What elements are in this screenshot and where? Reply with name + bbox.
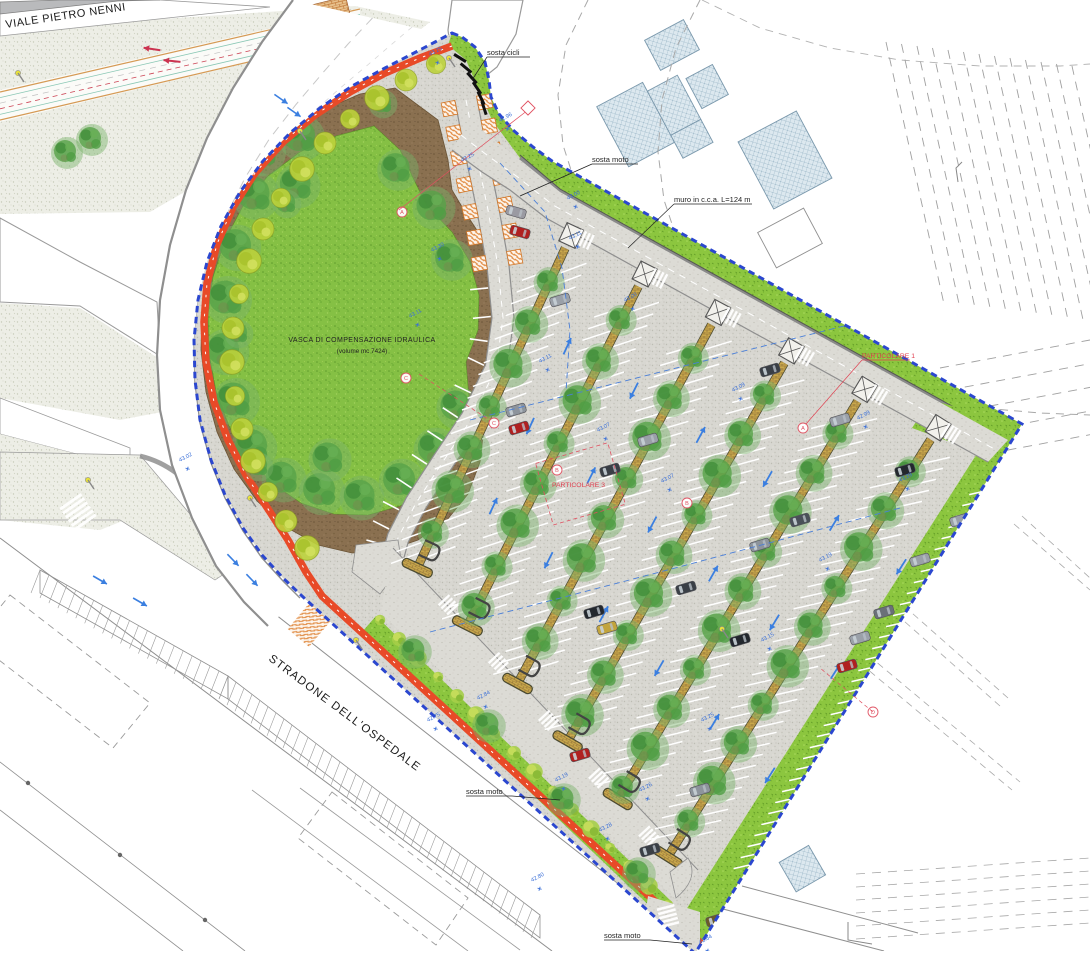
svg-text:muro in c.c.a. L=124 m: muro in c.c.a. L=124 m (674, 195, 751, 204)
svg-text:C: C (492, 421, 496, 427)
svg-text:PARTICOLARE 3: PARTICOLARE 3 (552, 482, 605, 489)
svg-text:sosta moto: sosta moto (604, 931, 641, 940)
svg-text:sosta cicli: sosta cicli (487, 48, 520, 57)
svg-text:PARTICOLARE 1: PARTICOLARE 1 (862, 353, 915, 360)
svg-text:sosta moto: sosta moto (592, 155, 629, 164)
svg-text:A: A (400, 210, 404, 216)
svg-text:A: A (801, 426, 805, 432)
svg-text:VASCA DI COMPENSAZIONE IDRAULI: VASCA DI COMPENSAZIONE IDRAULICA (288, 337, 435, 344)
svg-text:(volume mc 7424): (volume mc 7424) (337, 348, 387, 355)
svg-text:B: B (555, 468, 559, 474)
svg-text:C: C (404, 376, 408, 382)
svg-text:sosta moto: sosta moto (466, 787, 503, 796)
svg-text:B: B (685, 501, 689, 507)
